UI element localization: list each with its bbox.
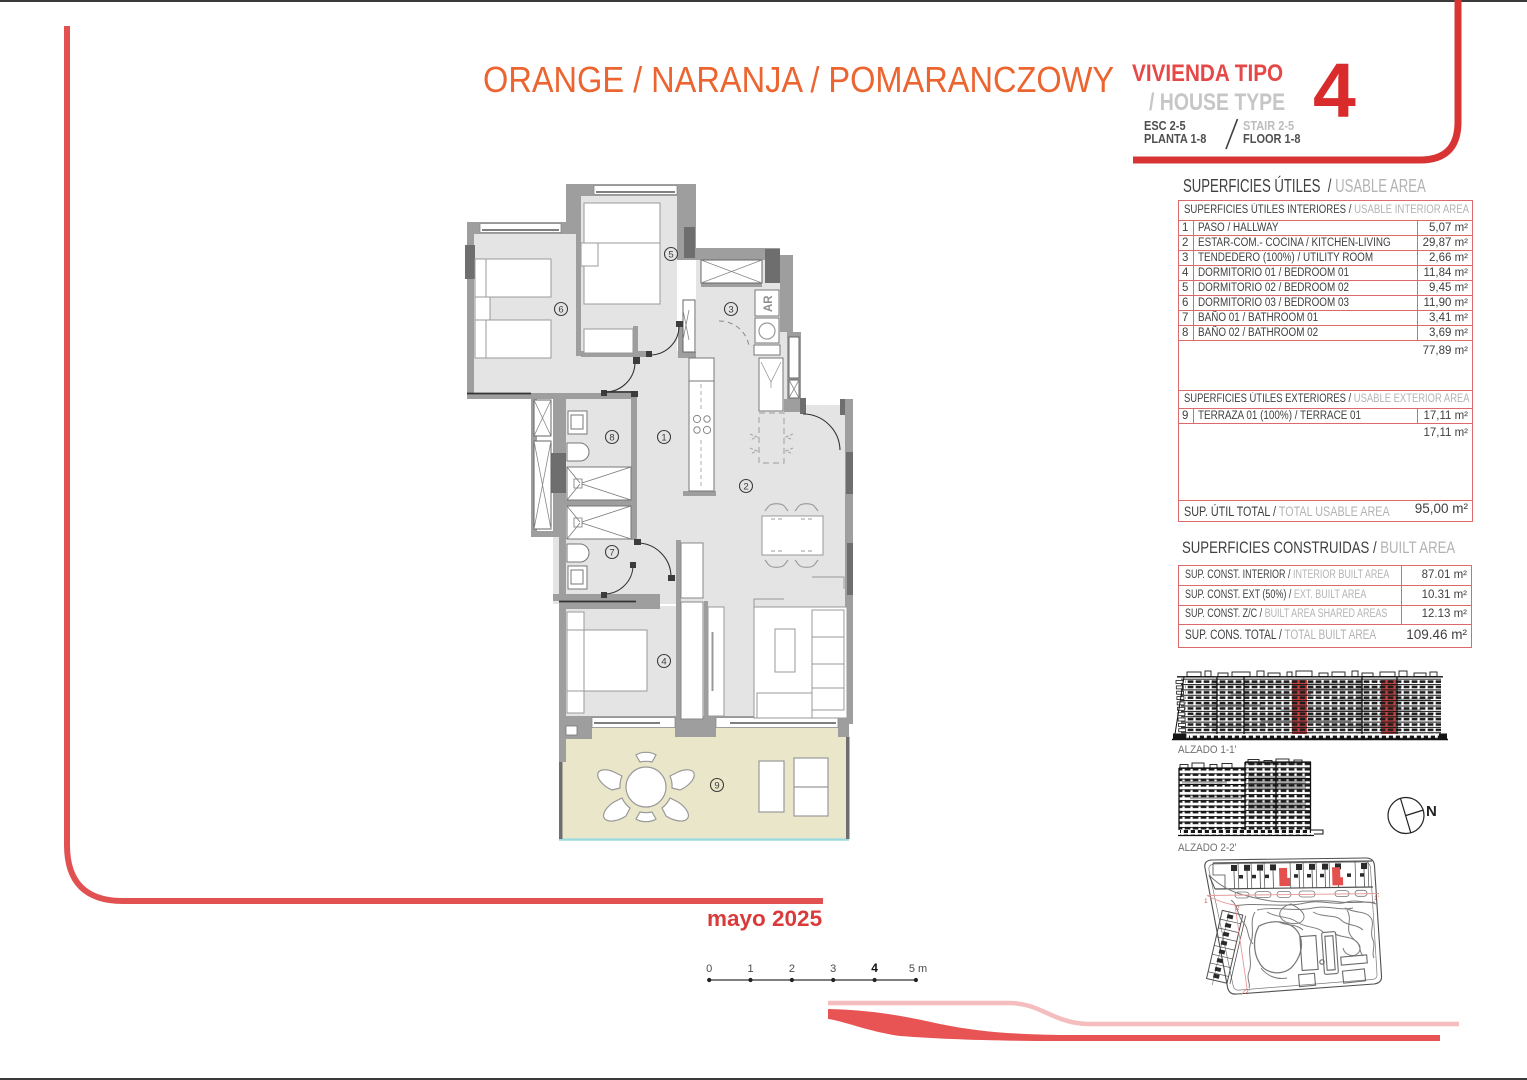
svg-text:2: 2 [1236, 905, 1240, 912]
svg-text:5 m: 5 m [909, 963, 927, 975]
svg-text:1: 1 [661, 433, 666, 444]
svg-text:4: 4 [871, 961, 878, 975]
svg-text:4: 4 [661, 657, 666, 668]
svg-text:7: 7 [609, 548, 614, 559]
svg-text:6: 6 [558, 305, 563, 316]
svg-text:3: 3 [728, 305, 733, 316]
svg-text:9: 9 [714, 781, 719, 792]
svg-text:8: 8 [609, 433, 614, 444]
svg-text:0: 0 [706, 963, 712, 975]
svg-text:3: 3 [830, 963, 836, 975]
svg-text:2: 2 [743, 482, 748, 493]
svg-text:N: N [1426, 803, 1437, 820]
svg-text:1': 1' [1374, 895, 1379, 902]
svg-text:5: 5 [668, 250, 673, 261]
svg-text:2: 2 [789, 963, 795, 975]
svg-text:AR: AR [763, 295, 775, 312]
svg-text:1: 1 [747, 963, 753, 975]
svg-text:2': 2' [1245, 989, 1250, 996]
svg-text:1: 1 [1204, 898, 1208, 905]
